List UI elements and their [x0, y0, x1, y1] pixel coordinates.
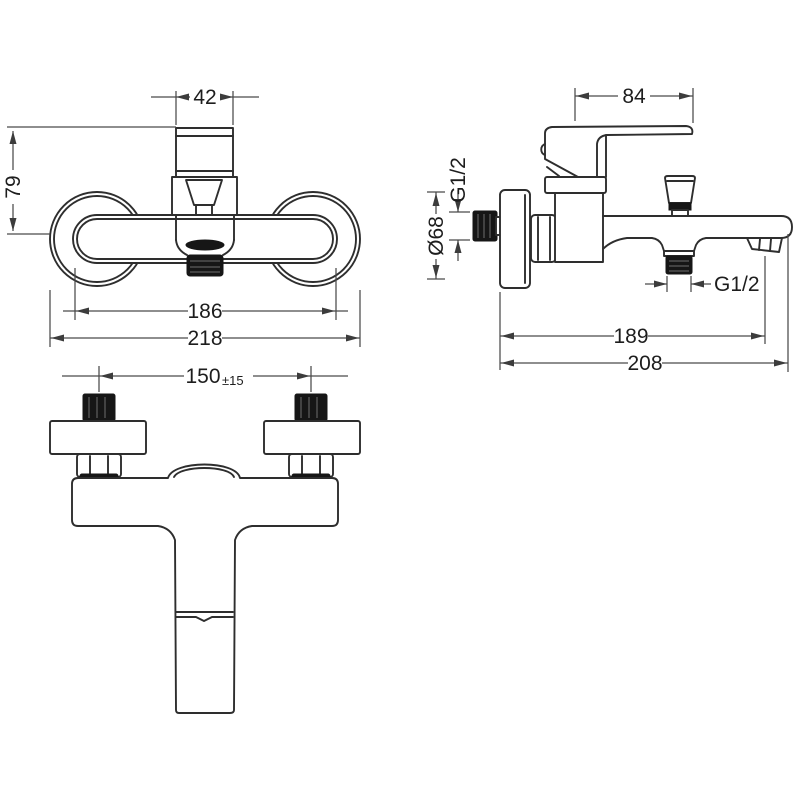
handle-collar: [545, 177, 606, 193]
aerator-ring: [186, 240, 224, 250]
top-left-connector: [50, 394, 146, 479]
side-inlet-thread: [473, 211, 497, 241]
dim-label-186: 186: [187, 300, 222, 323]
dimension-centres: 150 ±15: [62, 365, 348, 392]
dim-label-218: 218: [187, 327, 222, 350]
spout-aerator: [747, 238, 782, 252]
drawing-canvas: 42 79 186 2: [0, 0, 800, 800]
top-right-connector: [264, 394, 360, 479]
side-view: [473, 126, 792, 288]
shower-outlet-thread: [664, 251, 694, 274]
dimension-handle-width: 42: [151, 86, 259, 125]
dim-label-84: 84: [622, 85, 646, 108]
dim-label-42: 42: [193, 86, 216, 109]
side-hex-nut: [531, 215, 556, 262]
dim-label-o68: Ø68: [425, 216, 448, 256]
spout-body: [603, 216, 792, 274]
dim-label-189: 189: [613, 325, 648, 348]
side-handle-lever: [541, 126, 692, 177]
dim-label-79: 79: [2, 175, 25, 198]
top-view-dimensions: 150 ±15: [62, 365, 348, 392]
diverter-knob: [665, 176, 695, 216]
top-body: [72, 465, 338, 714]
dimension-flange-diameter: Ø68: [425, 192, 448, 279]
technical-drawing: 42 79 186 2: [0, 0, 800, 800]
dim-label-208: 208: [627, 352, 662, 375]
dimension-lever-length: 84: [575, 85, 693, 123]
dimension-outlet-thread: G1/2: [645, 273, 760, 296]
front-view: [50, 128, 360, 286]
dimension-inlet-thread: G1/2: [447, 157, 470, 261]
dim-label-tolerance: ±15: [222, 373, 244, 388]
dim-label-outlet-g12: G1/2: [714, 273, 760, 296]
dim-label-inlet-g12: G1/2: [447, 157, 470, 203]
front-outlet-thread: [187, 255, 223, 276]
dim-label-150: 150: [185, 365, 220, 388]
cartridge-housing: [555, 193, 603, 262]
top-view: [50, 394, 360, 713]
